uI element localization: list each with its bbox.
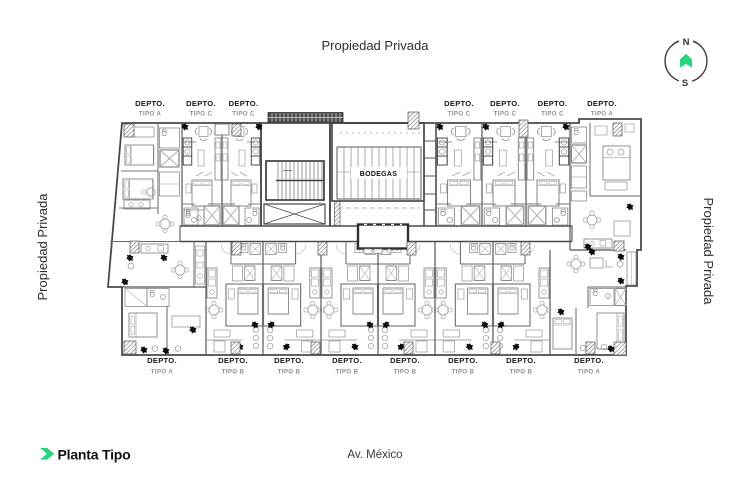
svg-text:DEPTO.: DEPTO. bbox=[135, 99, 165, 108]
svg-text:DEPTO.: DEPTO. bbox=[448, 356, 478, 365]
svg-text:BODEGAS: BODEGAS bbox=[360, 171, 398, 178]
svg-text:TIPO B: TIPO B bbox=[336, 369, 359, 376]
svg-text:DEPTO.: DEPTO. bbox=[538, 99, 568, 108]
svg-text:Av. México: Av. México bbox=[347, 449, 402, 461]
svg-text:TIPO B: TIPO B bbox=[278, 369, 301, 376]
svg-text:TIPO B: TIPO B bbox=[452, 369, 475, 376]
svg-text:S: S bbox=[682, 78, 688, 89]
svg-text:TIPO A: TIPO A bbox=[139, 111, 162, 118]
svg-text:DEPTO.: DEPTO. bbox=[274, 356, 304, 365]
svg-text:TIPO C: TIPO C bbox=[541, 111, 564, 118]
svg-text:DEPTO.: DEPTO. bbox=[218, 356, 248, 365]
svg-text:DEPTO.: DEPTO. bbox=[229, 99, 259, 108]
svg-text:Propiedad Privada: Propiedad Privada bbox=[35, 193, 50, 301]
svg-text:DEPTO.: DEPTO. bbox=[390, 356, 420, 365]
svg-text:DEPTO.: DEPTO. bbox=[587, 99, 617, 108]
svg-text:DEPTO.: DEPTO. bbox=[332, 356, 362, 365]
svg-text:DEPTO.: DEPTO. bbox=[506, 356, 536, 365]
svg-text:N: N bbox=[683, 37, 690, 48]
svg-text:TIPO A: TIPO A bbox=[591, 111, 614, 118]
svg-text:DEPTO.: DEPTO. bbox=[186, 99, 216, 108]
svg-text:TIPO B: TIPO B bbox=[222, 369, 245, 376]
svg-text:TIPO C: TIPO C bbox=[448, 111, 471, 118]
svg-text:DEPTO.: DEPTO. bbox=[490, 99, 520, 108]
svg-text:TIPO C: TIPO C bbox=[494, 111, 517, 118]
svg-text:TIPO C: TIPO C bbox=[190, 111, 213, 118]
svg-text:TIPO B: TIPO B bbox=[394, 369, 417, 376]
svg-text:DEPTO.: DEPTO. bbox=[147, 356, 177, 365]
svg-text:TIPO A: TIPO A bbox=[578, 369, 601, 376]
svg-text:TIPO A: TIPO A bbox=[151, 369, 174, 376]
svg-text:TIPO B: TIPO B bbox=[510, 369, 533, 376]
svg-text:Planta Tipo: Planta Tipo bbox=[58, 447, 131, 463]
svg-text:Propiedad Privada: Propiedad Privada bbox=[701, 198, 716, 306]
svg-text:Propiedad Privada: Propiedad Privada bbox=[322, 38, 430, 53]
svg-text:DEPTO.: DEPTO. bbox=[574, 356, 604, 365]
svg-text:DEPTO.: DEPTO. bbox=[444, 99, 474, 108]
svg-text:TIPO C: TIPO C bbox=[232, 111, 255, 118]
